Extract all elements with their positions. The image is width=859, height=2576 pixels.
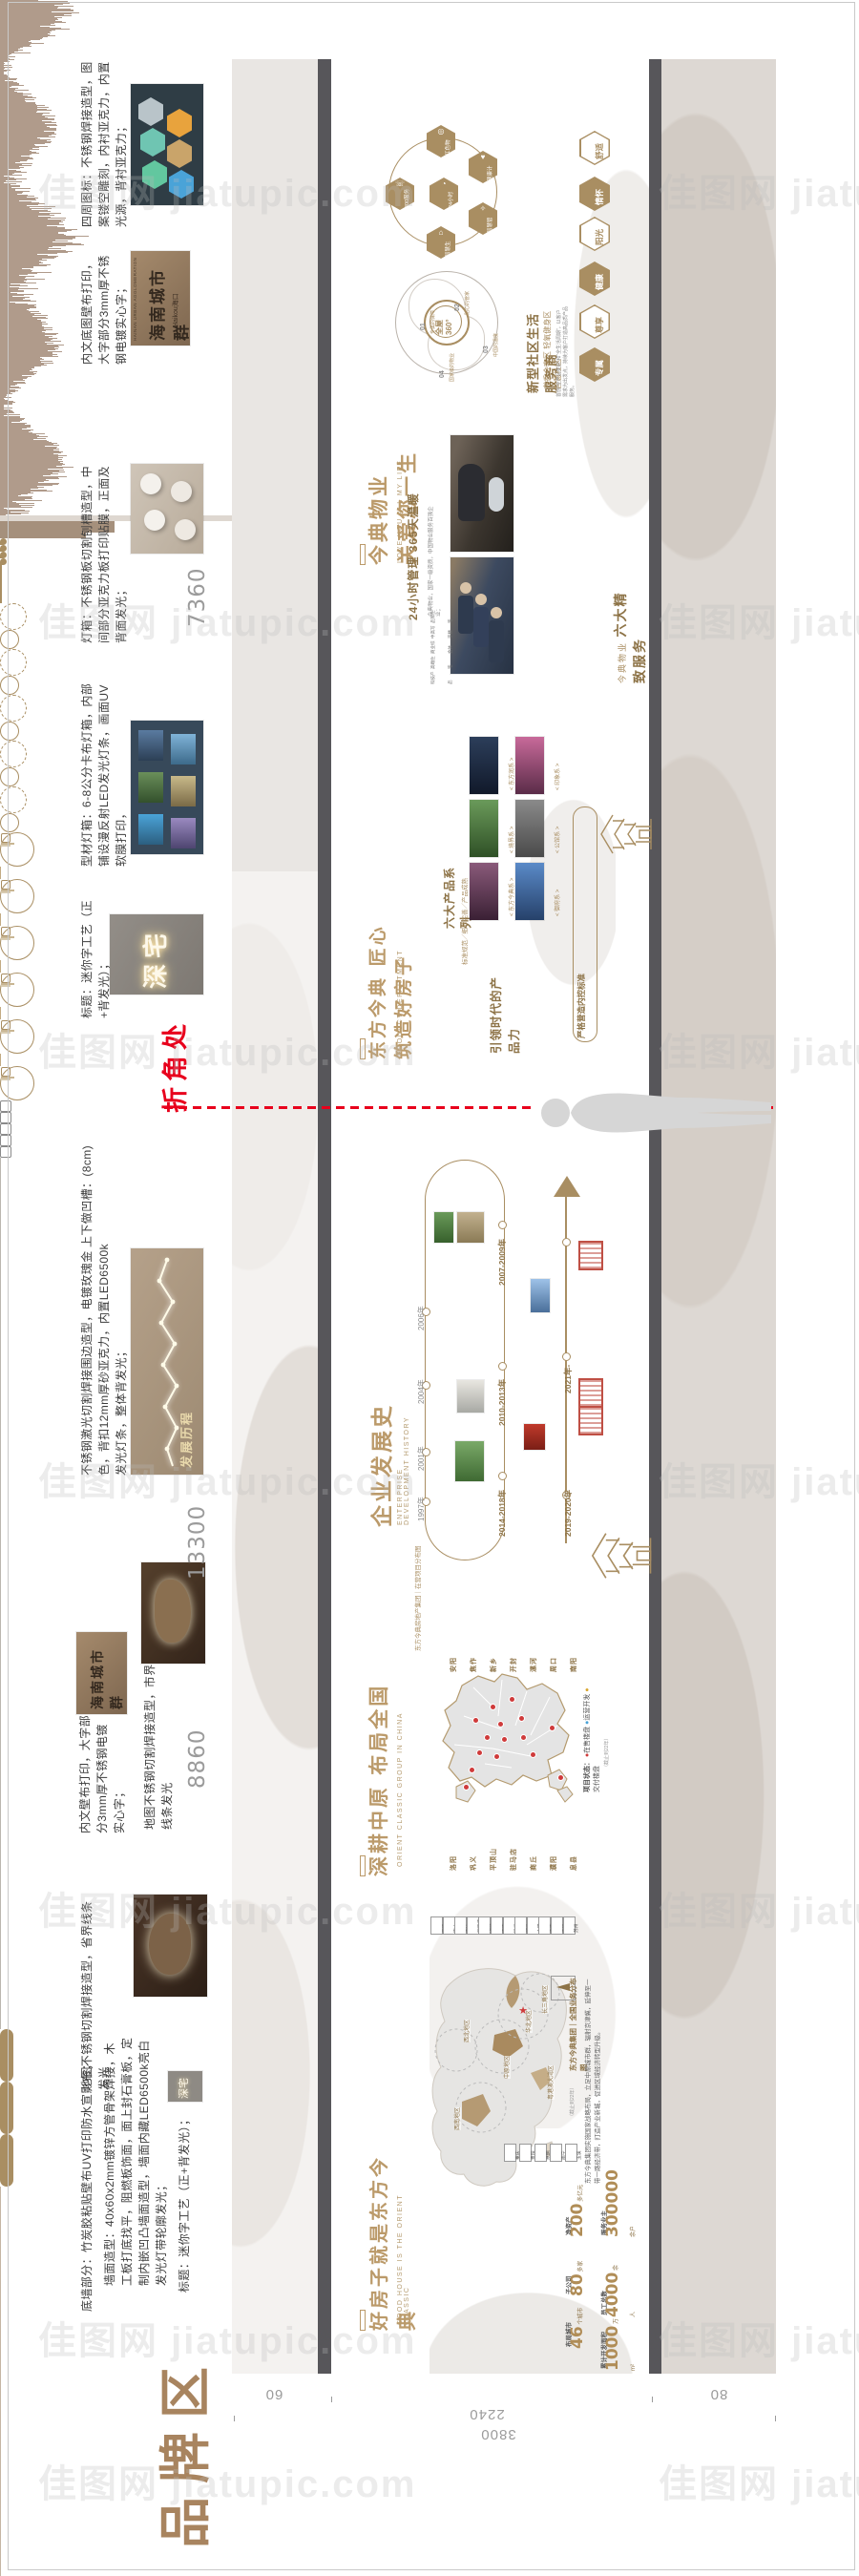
stat-label: 布局城市 xyxy=(558,2295,567,2347)
history-photo-3 xyxy=(457,1380,484,1413)
city-label: 息县 xyxy=(563,1846,573,1871)
pagoda-ornament-2 xyxy=(582,1529,659,1582)
service-circle xyxy=(0,1066,34,1100)
photo-hainan-board-2: 海南城市群 xyxy=(76,1632,127,1714)
series-sub: 标准规范／细节完善／产品成熟 xyxy=(459,860,468,965)
service-circle-icon xyxy=(1,880,10,890)
china-city-label: 济南 xyxy=(493,1918,501,1933)
title-property-tick xyxy=(360,544,366,565)
range-year: 2007-2009年 xyxy=(492,1226,505,1286)
side-year: 2006年 xyxy=(411,1296,424,1330)
photo-history-wall: 发展历程 xyxy=(131,1248,203,1475)
photo-mini-letters: 深宅 xyxy=(110,914,203,995)
region-label: 华北地区 xyxy=(518,1993,527,2033)
value-hex-label: 情怀 xyxy=(590,182,600,205)
photo-circle-lightbox xyxy=(131,464,203,554)
service-connector xyxy=(0,1007,1,1019)
petal-drop-icon xyxy=(0,552,7,558)
type-icon-label: 商业综合体 xyxy=(422,639,429,654)
china-city-box: 南京 xyxy=(538,1916,551,1935)
control-pill xyxy=(0,2029,13,2082)
service-circle-icon xyxy=(1,1020,10,1030)
map-pin xyxy=(519,1716,524,1721)
history-photo-5 xyxy=(531,1279,550,1312)
award-badge xyxy=(0,695,27,722)
stat-label: 服务业主 xyxy=(594,2184,602,2235)
range-year: 2019-2020年 xyxy=(558,1477,571,1537)
service-circle-textbar xyxy=(1,845,10,847)
value-hex-label: 舒适 xyxy=(590,136,600,159)
stat-value: 200 多亿元 xyxy=(568,2184,591,2237)
micro-text-bar xyxy=(0,2236,1,2307)
stat-value: 46 个城市 xyxy=(568,2295,591,2349)
provider-title: 新型社区生活服务商 xyxy=(523,302,539,393)
map-pin xyxy=(477,1750,482,1755)
map-pin xyxy=(491,1705,495,1709)
stat-label: 子公司 xyxy=(558,2243,567,2294)
series-photo xyxy=(515,863,544,920)
annotation-base-wall: 底墙部分：竹炭胶粘贴壁布UV打印防水宣影布； xyxy=(78,2057,97,2312)
china-city-box: 重庆 xyxy=(504,2144,516,2162)
red-stamp-3 xyxy=(578,1406,603,1435)
china-note: （截止到22年） xyxy=(569,2077,576,2119)
watermark: 佳图网 jiatupic.com xyxy=(38,1451,417,1506)
dim-tick xyxy=(775,2416,776,2421)
china-city-label: 邯郸 xyxy=(481,1918,489,1933)
award-badge-inner xyxy=(0,813,19,832)
dim-tick xyxy=(652,2397,653,2402)
title-map-sub: 东方今典房地产集团｜在营项目分布图 xyxy=(412,1539,424,1651)
award-badge xyxy=(0,603,27,630)
hex-label: 智慧生活 xyxy=(437,237,446,257)
series-label: < 东方今典系 > xyxy=(501,867,510,916)
petal-number: 01 xyxy=(412,298,422,330)
china-city-box: 无锡 xyxy=(551,1916,563,1935)
china-city-label: 合肥 xyxy=(529,1918,536,1933)
photo-staff-team xyxy=(450,557,513,674)
award-badge-inner xyxy=(0,767,19,786)
timeline-node xyxy=(562,1238,571,1246)
photo-valet-service xyxy=(450,435,513,552)
china-city-label: 昆明 xyxy=(537,2146,545,2160)
watermark: 佳图网 jiatupic.com xyxy=(38,1021,417,1077)
hex-connector xyxy=(0,580,2,588)
watermark: 佳图网 jiatupic.com xyxy=(38,2453,417,2508)
china-city-label: 南宁 xyxy=(553,2146,560,2160)
value-hex-label: 尊享 xyxy=(590,310,600,333)
photo-mini-word-small: 深宅 xyxy=(168,2071,202,2102)
map-pin xyxy=(550,1726,555,1730)
china-city-label: 徐州 xyxy=(505,1918,513,1933)
service-circle-icon xyxy=(1,927,10,936)
type-icon-label: 高端住宅 xyxy=(422,654,429,669)
history-ornament xyxy=(554,1176,580,1197)
type-icon-label: 品牌住宅 xyxy=(422,608,429,623)
micro-text-bar xyxy=(0,1270,1,1374)
annotation-inner-text: 内文壁布打印，大字部分3mm厚不锈钢电镀实心字； xyxy=(76,1713,116,1833)
micro-text-bar xyxy=(0,1915,1,2029)
service-connector xyxy=(0,1054,1,1066)
hex-label: 健康计划 xyxy=(479,161,488,181)
petal-label: 国家级的物业 xyxy=(441,344,449,382)
photo-cabinet-lightbox xyxy=(131,721,203,854)
title-property: 今典物业 关爱您一生 xyxy=(364,447,398,565)
service-circle-textbar xyxy=(1,938,10,940)
map-pin xyxy=(464,1785,469,1790)
china-city-label: 重庆 xyxy=(507,2146,514,2160)
pagoda-ornament-1 xyxy=(596,811,655,857)
value-hex-label: 阳光 xyxy=(590,222,600,245)
micro-text-bar xyxy=(0,1158,1,1270)
city-label: 平顶山 xyxy=(483,1846,492,1871)
watermark: 佳图网 jiatupic.com xyxy=(659,1021,859,1077)
watermark: 佳图网 jiatupic.com xyxy=(659,1880,859,1936)
watermark: 佳图网 jiatupic.com xyxy=(38,1880,417,1936)
right-skyline-panel xyxy=(661,59,776,2374)
value-hex-label: 健康 xyxy=(590,267,600,290)
china-city-label: 唐山 xyxy=(445,1918,452,1933)
series-photo xyxy=(470,863,498,920)
china-city-box: 徐州 xyxy=(503,1916,515,1935)
watermark: 佳图网 jiatupic.com xyxy=(659,592,859,647)
map-pin xyxy=(473,1718,478,1723)
series-photo xyxy=(470,737,498,794)
micro-text-bar xyxy=(0,2474,1,2549)
service-six-title: 今典物业 六大精致服务 xyxy=(611,584,636,683)
micro-text-bar xyxy=(0,2419,1,2474)
hex-connector xyxy=(0,588,2,596)
dim-tick xyxy=(331,2397,332,2402)
petal-label: 中国的温度 xyxy=(485,319,492,357)
type-icon-label: 科技产品 xyxy=(422,669,429,684)
series-photo xyxy=(515,737,544,794)
china-city-label: 无锡 xyxy=(554,1918,561,1933)
type-icon-box xyxy=(0,1112,11,1123)
china-city-box: 苏州 xyxy=(563,1916,576,1935)
series-label: < 印象系 > xyxy=(547,741,555,790)
hex-connector xyxy=(0,565,2,573)
micro-text-bar xyxy=(0,2307,1,2357)
watermark: 佳图网 jiatupic.com xyxy=(659,2453,859,2508)
series-photo xyxy=(470,800,498,857)
annotation-groove: 上下做凹槽：(8cm) xyxy=(78,1121,118,1247)
series-title: 六大产品系列 xyxy=(441,860,456,929)
micro-text-bar xyxy=(0,1683,1,1802)
service-circle-icon xyxy=(1,1067,10,1077)
control-pill xyxy=(0,2082,13,2134)
stat-value: 300000 余户 xyxy=(603,2184,626,2237)
award-badge-inner xyxy=(0,676,19,695)
annotation-profile-lightbox: 型材灯箱：6-8公分卡布灯箱，内部铺设漫反射LED发光灯条，画面UV软膜打印， xyxy=(78,680,134,867)
range-year: 2010-2013年 xyxy=(492,1367,505,1426)
pagoda-icon xyxy=(596,811,655,857)
micro-text-bar xyxy=(0,2549,1,2576)
barcode-line xyxy=(0,507,32,508)
watermark: 佳图网 jiatupic.com xyxy=(38,592,417,647)
history-photo-2 xyxy=(457,1212,484,1243)
china-city-label: 南京 xyxy=(541,1918,549,1933)
china-city-box: 唐山 xyxy=(443,1916,455,1935)
red-stamp-1 xyxy=(578,1241,603,1270)
china-city-box: 石家庄 xyxy=(467,1916,479,1935)
petal-label: 专属的保障 xyxy=(422,296,429,334)
type-icon-box xyxy=(0,1100,11,1112)
annotation-basemap: 内文底图壁布打印，大字部分3mm厚不锈钢电镀实心字； xyxy=(78,248,118,365)
title-map: 深耕中原 布局全国 xyxy=(364,1663,398,1876)
side-year: 2004年 xyxy=(411,1370,424,1404)
china-city-label: 廊坊 xyxy=(457,1918,465,1933)
type-icon-box xyxy=(0,1123,11,1135)
series-label: < 境界系 > xyxy=(501,804,510,853)
human-silhouette xyxy=(536,1075,775,1151)
petal-number: 03 xyxy=(475,321,485,353)
service-circle xyxy=(0,973,34,1007)
service-circle-textbar xyxy=(1,891,10,893)
china-city-label: 玉溪 xyxy=(568,2146,576,2160)
watermark: 佳图网 jiatupic.com xyxy=(659,162,859,218)
region-label: 长三角地区 xyxy=(534,1974,543,2014)
power-title: 引领时代的产品力 xyxy=(486,970,502,1054)
dim-2240: 2240 xyxy=(460,2406,513,2422)
title-property-note: 今典物业，国家一级资质，中国物业服务百强企业； xyxy=(427,496,434,617)
stat-label: 净资产 xyxy=(558,2184,567,2235)
china-city-box: 郑州 xyxy=(514,1916,527,1935)
region-label: 西南地区 xyxy=(447,2090,455,2130)
history-photo-6 xyxy=(524,1424,545,1450)
china-city-label: 石家庄 xyxy=(469,1918,476,1933)
city-label: 商丘 xyxy=(523,1846,533,1871)
service-circle xyxy=(0,879,34,913)
value-hex-label: 专属 xyxy=(590,353,600,376)
title-goodhouse-en: GOOD HOUSE IS THE ORIENT CLASSIC xyxy=(397,2161,407,2325)
china-city-box: 贵阳 xyxy=(519,2144,532,2162)
china-city-box: 天津 xyxy=(430,1916,443,1935)
micro-text-bar xyxy=(0,1472,1,1570)
china-city-box: 南宁 xyxy=(550,2144,562,2162)
award-badge xyxy=(0,786,27,813)
annotation-map-city: 地图不锈钢切割焊接造型，市界线条发光 xyxy=(141,1663,176,1830)
region-label: 西北地区 xyxy=(456,2002,465,2042)
gate-icon xyxy=(582,1529,659,1582)
stat-label: 累计开发面积 xyxy=(594,2317,602,2369)
series-label: < 御府系 > xyxy=(547,867,555,916)
service-connector xyxy=(0,867,1,879)
hex-connector xyxy=(0,596,2,603)
city-label: 驻马店 xyxy=(503,1846,513,1871)
type-icon-box xyxy=(0,1146,11,1158)
watermark: 佳图网 jiatupic.com xyxy=(659,2310,859,2365)
petal-label: 贴心的管家 xyxy=(456,277,464,315)
series-photo xyxy=(515,800,544,857)
service-circle xyxy=(0,1019,34,1054)
dim-80: 80 xyxy=(700,2386,738,2402)
annotation-wall-shape: 墙面造型：40x60x2mm镀锌方管骨架焊接，木工板打底找平，阻燃板饰面，面上封… xyxy=(101,2036,162,2286)
series-label: < 东方润系 > xyxy=(501,741,510,790)
china-title: 东方今典集团｜全国业务分布图 xyxy=(568,1978,580,2071)
petal-number: 02 xyxy=(447,279,456,311)
henan-legend-note: （截止到22年） xyxy=(603,1708,611,1770)
control-pill xyxy=(0,2134,13,2187)
stat-label: 员工总数 xyxy=(594,2264,602,2315)
china-desc: 东方今典集团实施国家战略布局，立足中原城市群，辐射京津冀，延伸至一带一路经济带，… xyxy=(584,1978,600,2184)
title-map-tick xyxy=(360,1855,366,1876)
china-city-label: 天津 xyxy=(433,1918,441,1933)
map-pin xyxy=(558,1775,563,1780)
petal-number: 04 xyxy=(431,346,441,378)
range-year: 2021年- xyxy=(558,1334,571,1393)
range-year: 2014-2018年 xyxy=(492,1477,505,1537)
service-circle-textbar xyxy=(1,1079,10,1080)
floor-bar-left xyxy=(318,59,331,2374)
service-circle xyxy=(0,832,34,867)
ceiling-bar-right xyxy=(649,59,661,2374)
control-title: 严格营造内控标准 xyxy=(576,974,593,1038)
hex-label: 24小时服务 xyxy=(440,188,449,208)
watermark: 佳图网 jiatupic.com xyxy=(38,2310,417,2365)
map-pin xyxy=(485,1735,490,1740)
provider-note: 首创“全产品类别”和“全生活周期”，以客户需求为出发点，持续为客户打造高品质产品… xyxy=(555,305,567,397)
title-map-en: ORIENT CLASSIC GROUP IN CHINA xyxy=(397,1670,407,1867)
watermark: 佳图网 jiatupic.com xyxy=(38,162,417,218)
henan-map xyxy=(435,1668,580,1812)
award-badge-inner xyxy=(0,722,19,741)
map-pin xyxy=(494,1754,499,1759)
hex-connector xyxy=(0,573,2,580)
red-stamp-2 xyxy=(578,1378,603,1408)
city-label: 濮阳 xyxy=(543,1846,553,1871)
china-city-label: 贵阳 xyxy=(522,2146,530,2160)
award-badge xyxy=(0,649,27,676)
type-icon-label: 中高写字楼 xyxy=(422,623,429,639)
region-label: 粤港澳大湾区 xyxy=(540,2060,549,2100)
petal-drop-icon xyxy=(0,545,7,552)
service-circle-textbar xyxy=(1,985,10,987)
henan-legend: 项目状态： ●在售楼盘 ●运营开发 ●交付楼盘 xyxy=(582,1686,603,1792)
china-city-box: 济南 xyxy=(491,1916,503,1935)
service-connector xyxy=(0,960,1,973)
history-photo-1 xyxy=(434,1212,453,1243)
china-city-box: 玉溪 xyxy=(565,2144,577,2162)
city-label: 巩义 xyxy=(463,1846,472,1871)
china-city-box: 合肥 xyxy=(527,1916,539,1935)
fold-dash-line-left xyxy=(164,1106,534,1109)
map-pin xyxy=(470,1768,474,1772)
micro-text-bar xyxy=(0,1570,1,1683)
service-circle-icon xyxy=(1,833,10,843)
watermark: 佳图网 jiatupic.com xyxy=(659,1451,859,1506)
map-pin xyxy=(531,1752,535,1757)
series-label: < 公馆系 > xyxy=(547,804,555,853)
micro-text-bar xyxy=(0,2187,1,2236)
region-label: 中原地区 xyxy=(496,2039,505,2079)
type-icon-box xyxy=(0,1135,11,1146)
award-badge-inner xyxy=(0,630,19,649)
provider-sub: 书香会客区 轻氧健身区 智慧社区 xyxy=(542,305,553,389)
map-pin xyxy=(498,1722,503,1727)
petal-drop-icon xyxy=(0,558,7,565)
dim-tick xyxy=(234,2416,235,2421)
micro-text-bar xyxy=(0,2357,1,2419)
stat-value: 1000 万m² xyxy=(603,2317,626,2371)
dim-8860: 8860 xyxy=(185,1716,212,1789)
service-circle xyxy=(0,926,34,960)
map-pin xyxy=(502,1737,507,1742)
china-city-label: 郑州 xyxy=(517,1918,525,1933)
stat-value: 80 多家 xyxy=(568,2243,591,2296)
dim-60: 60 xyxy=(255,2386,293,2402)
china-city-box: 昆明 xyxy=(534,2144,547,2162)
china-city-box: 邯郸 xyxy=(478,1916,491,1935)
map-pin xyxy=(510,1697,514,1702)
history-photo-4 xyxy=(455,1441,484,1481)
china-city-box: 廊坊 xyxy=(454,1916,467,1935)
brand-wall-design-sheet: 四周图标：不锈钢焊接造型，图案镂空雕刻，内衬亚克力，内置光源，背衬亚克力； 内文… xyxy=(0,0,859,2576)
service-circle-icon xyxy=(1,974,10,983)
wall-left-band-lower xyxy=(232,871,318,2374)
service-connector xyxy=(0,913,1,926)
award-badge xyxy=(0,741,27,767)
title-goodhouse: 好房子就是东方今典 xyxy=(364,2155,398,2331)
stat-value: 4000 余人 xyxy=(603,2264,626,2317)
hex-label: 智慧管家 xyxy=(479,213,488,233)
petal-drop-icon xyxy=(0,538,7,545)
micro-text-bar xyxy=(0,1374,1,1472)
dim-3800: 3800 xyxy=(471,2426,525,2442)
hex-label: 红色物业 xyxy=(437,136,446,156)
city-label: 洛阳 xyxy=(443,1846,452,1871)
micro-text-bar xyxy=(0,1802,1,1915)
photo-hainan-board: 海南城市群 HAINAN URBAN AGGLOMERATION Haikou海… xyxy=(131,251,190,346)
map-pin xyxy=(521,1735,526,1740)
service-circle-textbar xyxy=(1,1032,10,1034)
china-city-label: 苏州 xyxy=(565,1918,573,1933)
